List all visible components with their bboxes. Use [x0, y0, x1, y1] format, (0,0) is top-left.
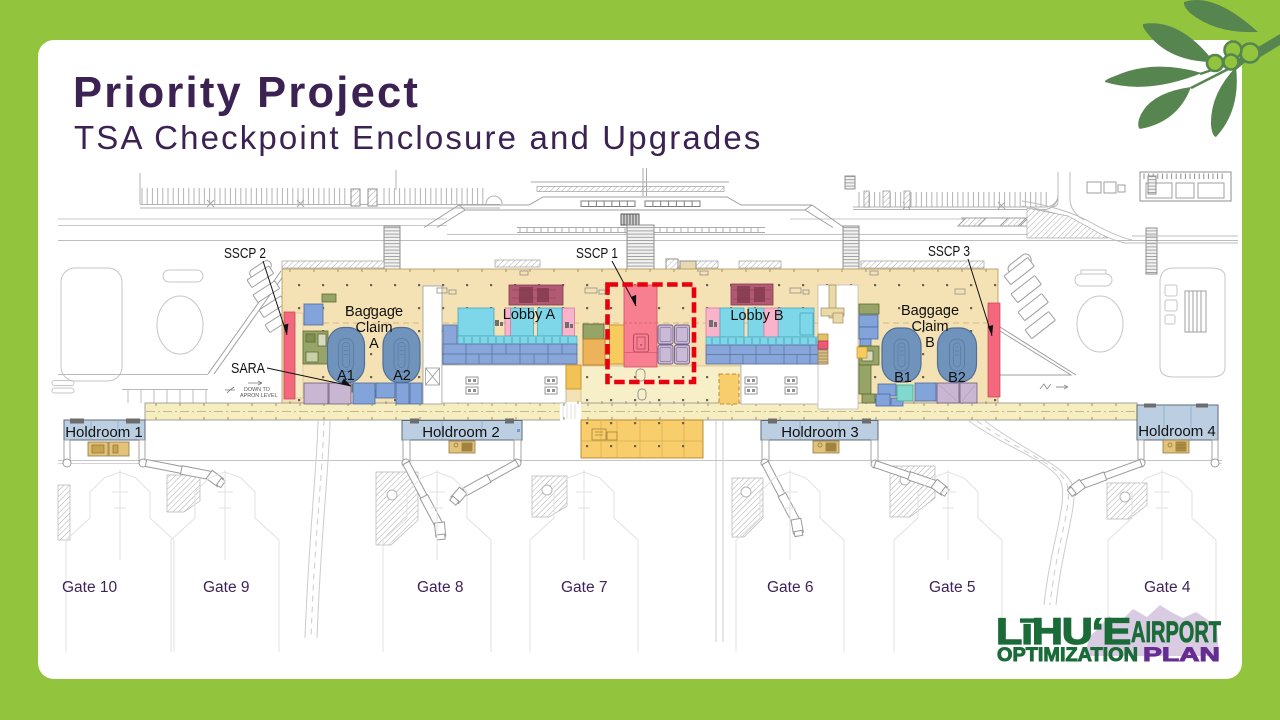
svg-text:Baggage: Baggage — [345, 304, 403, 320]
svg-text:Gate 10: Gate 10 — [62, 579, 118, 596]
svg-text:Gate 6: Gate 6 — [767, 579, 814, 596]
svg-text:Holdroom 2: Holdroom 2 — [422, 424, 500, 441]
svg-text:SSCP 3: SSCP 3 — [928, 243, 970, 260]
svg-text:Lobby B: Lobby B — [730, 308, 783, 324]
svg-text:SARA: SARA — [231, 360, 265, 377]
svg-text:Gate 5: Gate 5 — [929, 579, 976, 596]
svg-text:Holdroom 3: Holdroom 3 — [781, 424, 859, 441]
svg-text:Gate 9: Gate 9 — [203, 579, 250, 596]
svg-text:Lobby A: Lobby A — [503, 307, 556, 323]
svg-text:B1: B1 — [894, 370, 912, 386]
svg-text:APRON LEVEL: APRON LEVEL — [240, 393, 277, 399]
svg-text:SSCP 1: SSCP 1 — [576, 245, 618, 262]
svg-text:Claim: Claim — [911, 319, 948, 335]
svg-text:SSCP 2: SSCP 2 — [224, 245, 266, 262]
svg-text:OPTIMIZATION: OPTIMIZATION — [997, 645, 1138, 666]
svg-text:Holdroom 4: Holdroom 4 — [1138, 423, 1216, 440]
svg-text:PLAN: PLAN — [1143, 645, 1220, 666]
svg-text:B2: B2 — [948, 370, 966, 386]
svg-text:Holdroom 1: Holdroom 1 — [65, 424, 143, 441]
svg-text:Gate 4: Gate 4 — [1144, 579, 1191, 596]
svg-text:Baggage: Baggage — [901, 303, 959, 319]
svg-text:A2: A2 — [393, 368, 411, 384]
svg-text:Gate 7: Gate 7 — [561, 579, 608, 596]
svg-text:B: B — [925, 335, 935, 351]
svg-text:Claim: Claim — [355, 320, 392, 336]
svg-text:A: A — [369, 336, 379, 352]
svg-text:A1: A1 — [337, 368, 355, 384]
svg-text:Gate 8: Gate 8 — [417, 579, 464, 596]
